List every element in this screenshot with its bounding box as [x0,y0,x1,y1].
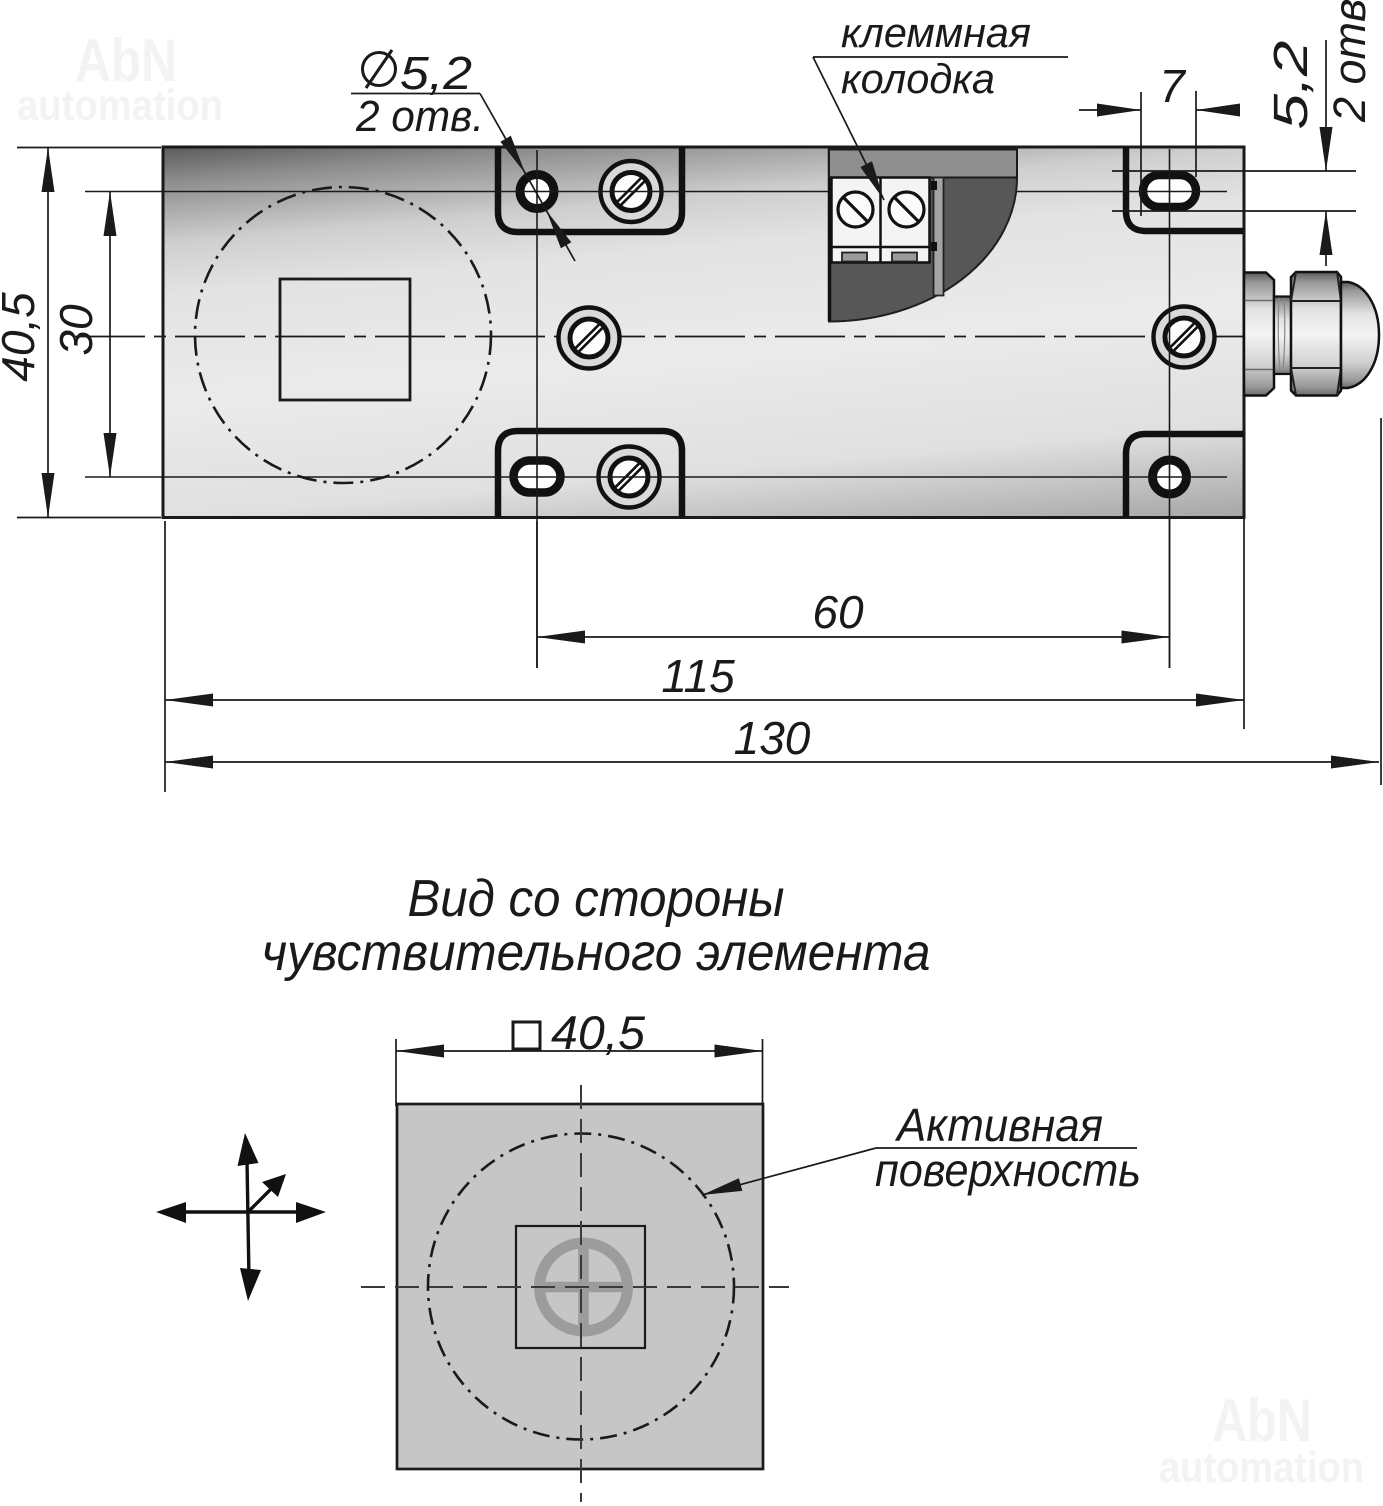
svg-text:колодка: колодка [841,55,995,102]
svg-text:Вид со стороны: Вид со стороны [408,870,785,928]
svg-text:2 отв.: 2 отв. [355,92,484,141]
svg-text:поверхность: поверхность [875,1144,1141,1196]
svg-text:115: 115 [661,650,735,702]
svg-text:клеммная: клеммная [841,9,1031,56]
svg-text:40,5: 40,5 [0,292,44,382]
svg-text:2 отв.: 2 отв. [1324,0,1375,123]
svg-text:60: 60 [812,586,864,638]
svg-text:5,2: 5,2 [1265,41,1318,130]
svg-text:automation: automation [1159,1443,1364,1492]
svg-text:automation: automation [17,81,223,130]
svg-text:130: 130 [734,712,811,764]
svg-text:чувствительного элемента: чувствительного элемента [262,924,931,982]
svg-text:7: 7 [1159,60,1186,112]
svg-text:30: 30 [50,304,102,356]
